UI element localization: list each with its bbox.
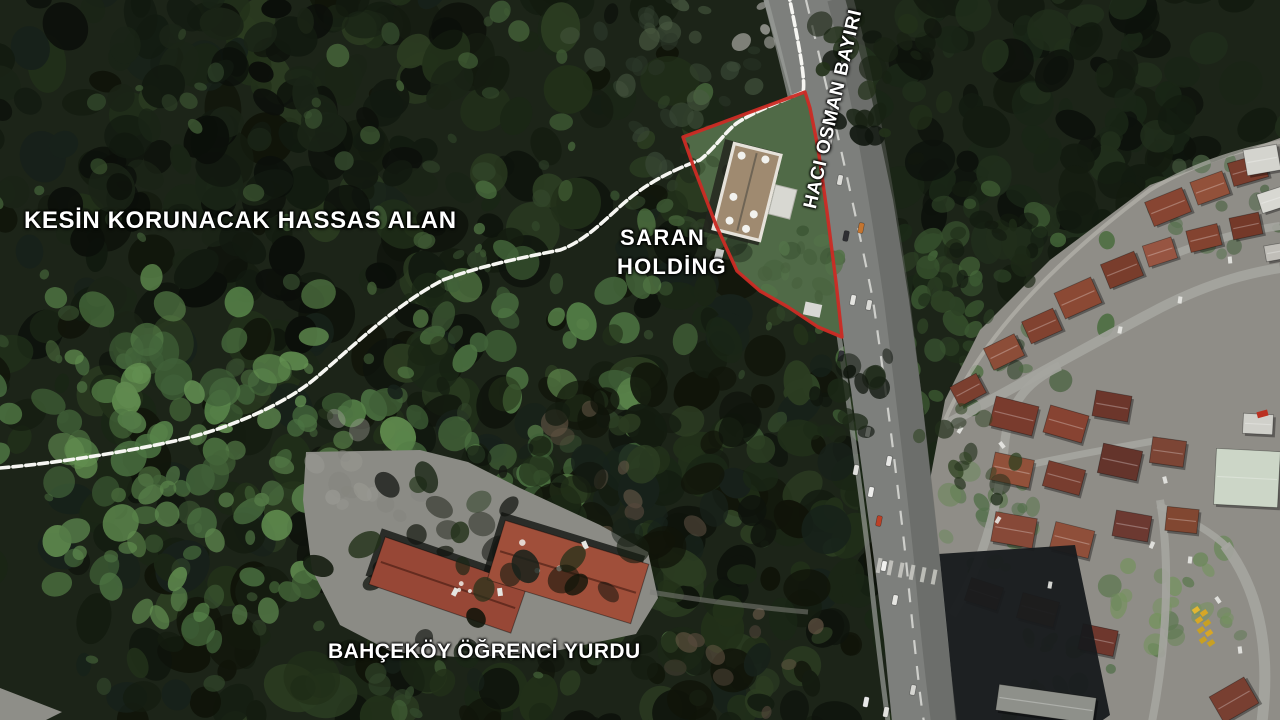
satellite-imagery (0, 0, 1280, 720)
building-roof (1165, 506, 1202, 536)
protected-area-label: KESİN KORUNACAK HASSAS ALAN (24, 207, 457, 235)
company-label-line2: HOLDİNG (617, 254, 727, 280)
building-roof (1149, 437, 1189, 470)
satellite-map: KESİN KORUNACAK HASSAS ALAN SARAN HOLDİN… (0, 0, 1280, 720)
building-roof (1243, 144, 1280, 178)
building-roof (1213, 448, 1280, 510)
dormitory-label: BAHÇEKÖY ÖĞRENCİ YURDU (328, 640, 641, 664)
company-label-line1: SARAN (620, 225, 705, 251)
